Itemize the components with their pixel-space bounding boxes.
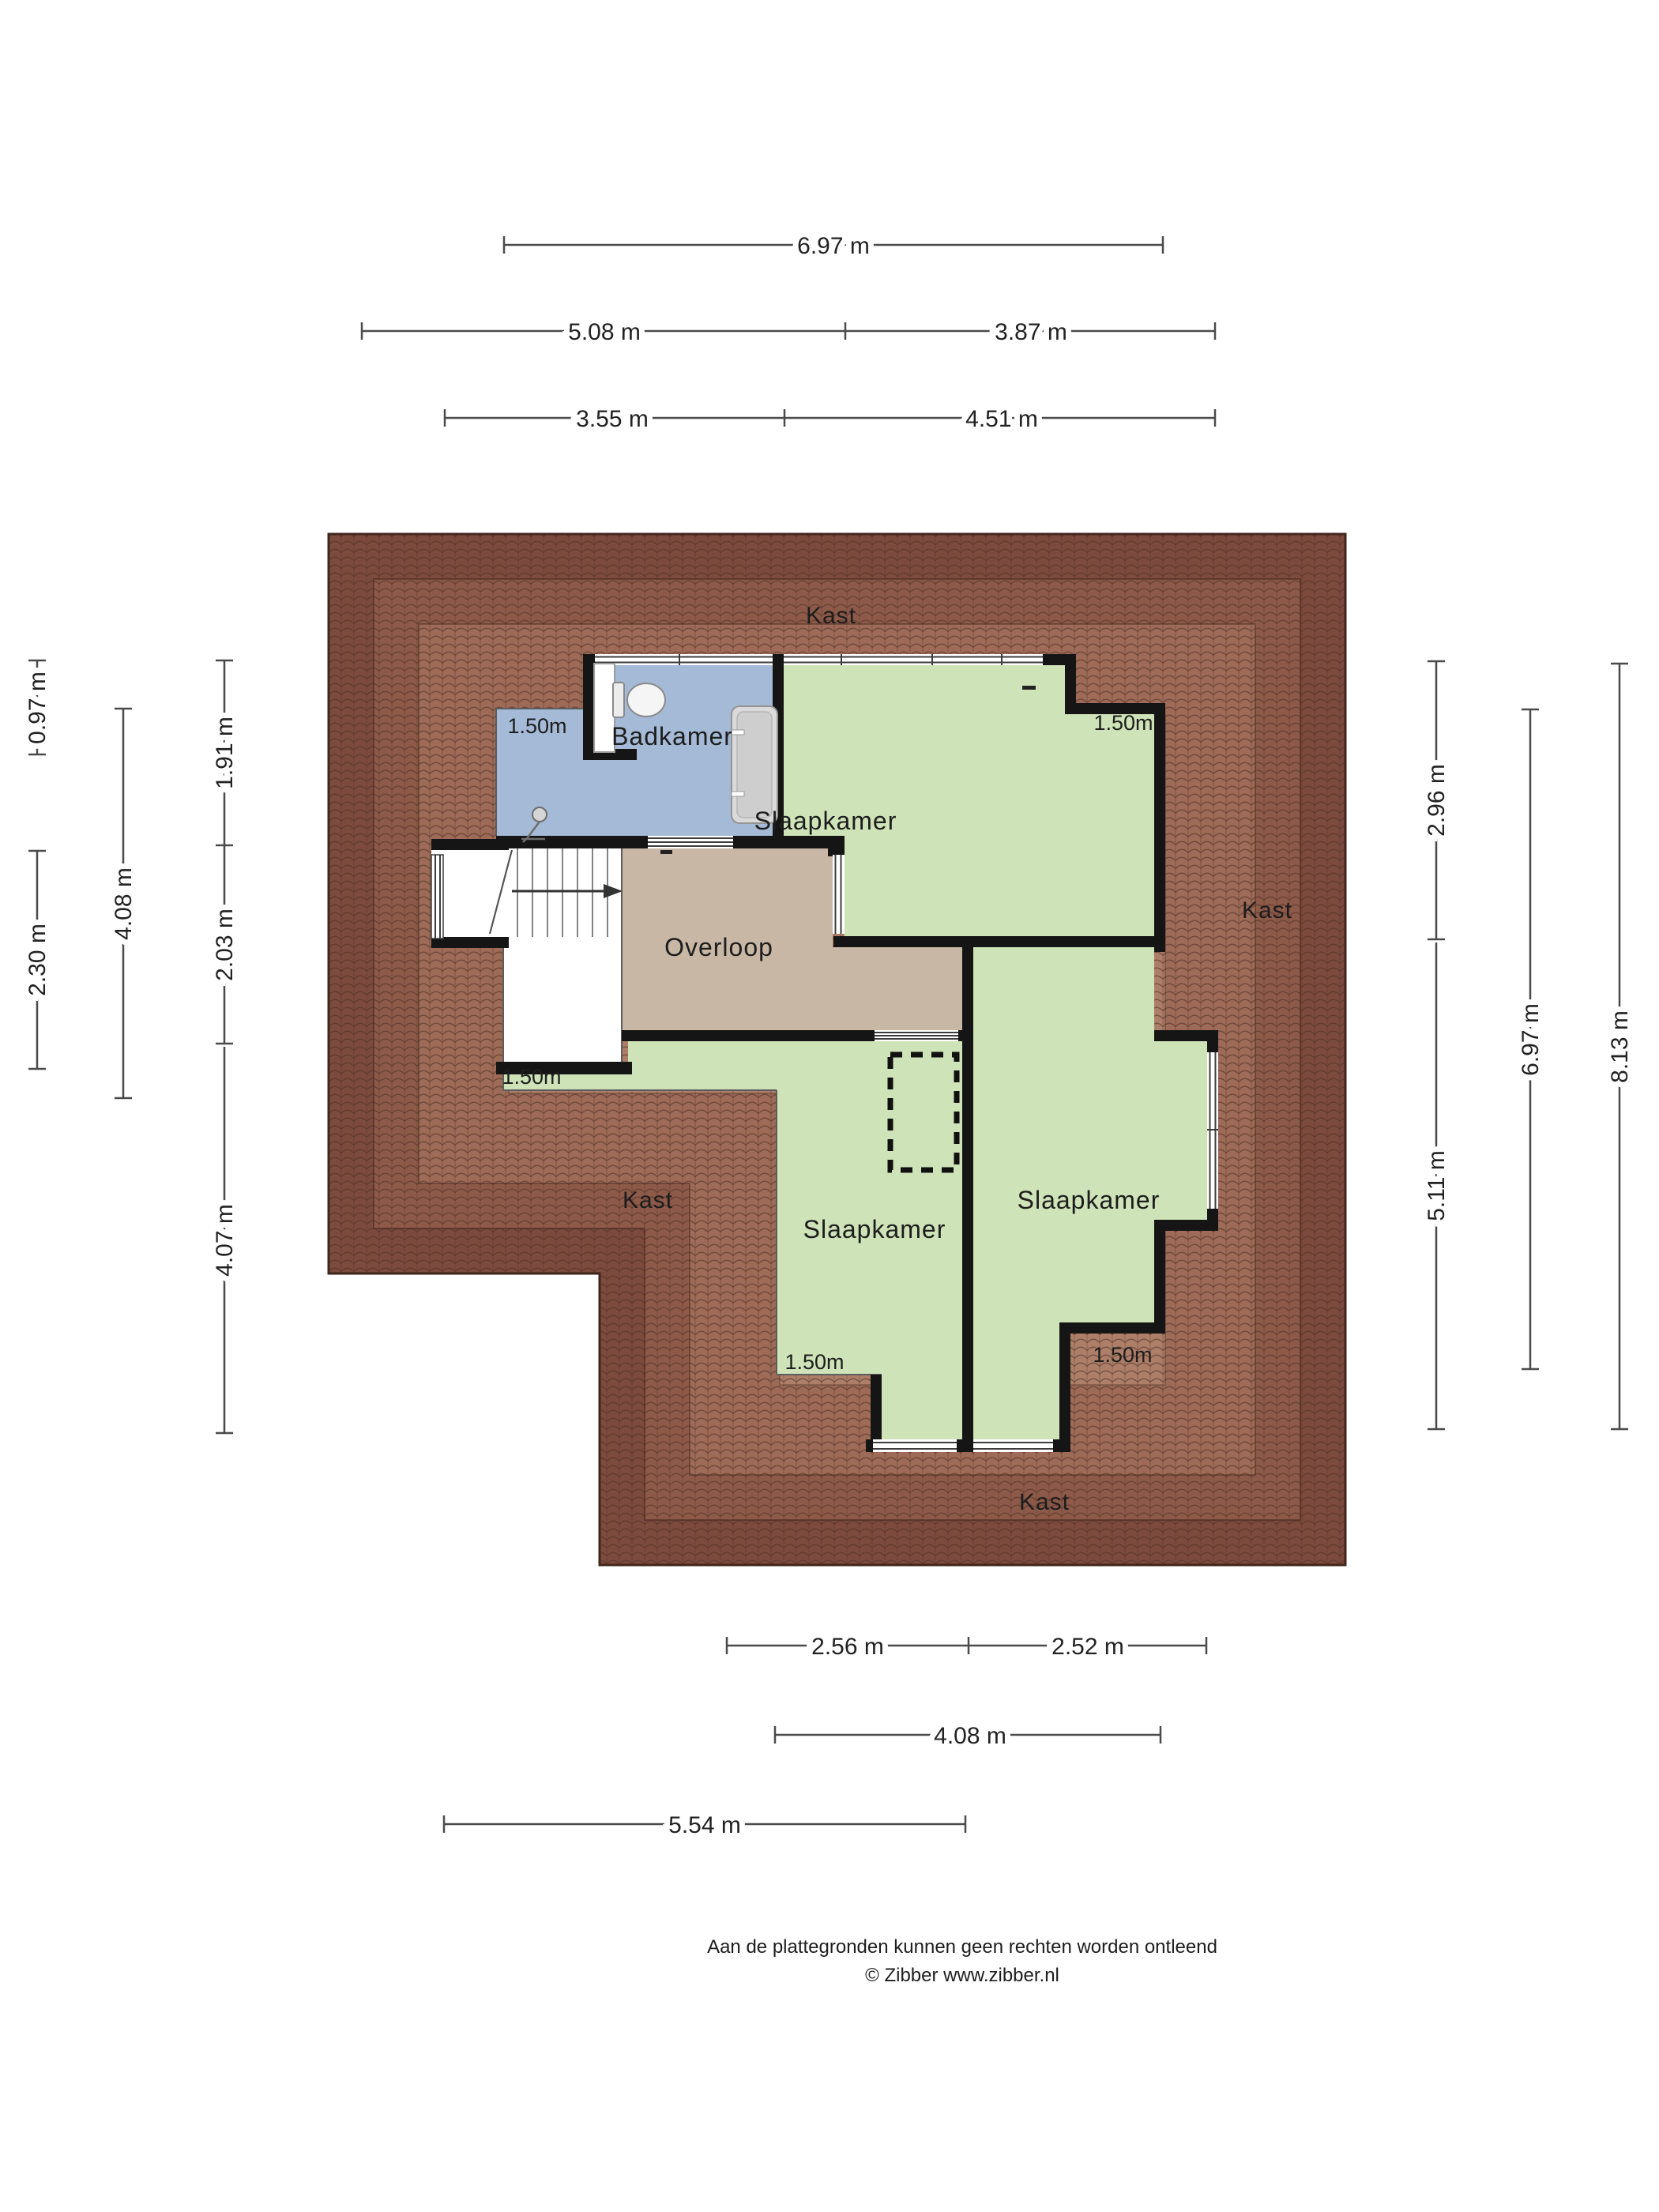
dim-label: 6.97 m — [797, 233, 870, 259]
dim-label: 2.56 m — [811, 1634, 884, 1660]
stair-void — [503, 937, 622, 1062]
dim-label: 0.97 m — [24, 671, 51, 744]
wall-divider — [962, 936, 973, 1452]
dim-left-191: 1.91 m — [212, 660, 238, 845]
window-stairwell — [431, 855, 443, 939]
wall-bay-north — [1154, 1030, 1218, 1041]
footer-credit: © Zibber www.zibber.nl — [865, 1965, 1059, 1986]
dim-label: 5.11 m — [1424, 1150, 1450, 1221]
dim-left-408: 4.08 m — [111, 709, 137, 1098]
dim-right-813: 8.13 m — [1607, 664, 1633, 1429]
toilet-icon — [613, 683, 665, 717]
dim-right-296: 2.96 m — [1424, 661, 1450, 939]
window-overloop-east — [833, 855, 845, 934]
dim-label: 2.52 m — [1051, 1634, 1124, 1660]
clearance-stairs: 1.50m — [502, 1065, 561, 1089]
dimensions-right: 2.96 m 5.11 m 6.97 m 8.13 m — [1424, 661, 1633, 1429]
dim-top-697: 6.97 m — [504, 233, 1163, 259]
dim-label: 5.08 m — [568, 319, 641, 345]
wall-bay-south — [1154, 1220, 1218, 1231]
wall-se-jog — [1059, 1322, 1165, 1334]
label-badkamer: Badkamer — [611, 722, 733, 750]
dim-label: 3.55 m — [576, 406, 649, 432]
dim-left-097: 0.97 m — [24, 660, 51, 754]
dim-left-203: 2.03 m — [212, 845, 238, 1044]
label-slaapkamer-3: Slaapkamer — [1018, 1186, 1161, 1214]
label-kast-left: Kast — [623, 1187, 673, 1213]
wall-bed1-south — [833, 936, 1165, 947]
dim-bottom-554: 5.54 m — [444, 1812, 965, 1838]
wall-bay-cap-1 — [1207, 1041, 1218, 1052]
dim-label: 3.87 m — [995, 319, 1067, 345]
window-bay-east — [1207, 1052, 1218, 1209]
dim-label: 4.08 m — [934, 1723, 1006, 1749]
dimensions-bottom: 2.56 m 2.52 m 4.08 m 5.54 m — [444, 1634, 1206, 1838]
footer: Aan de plattegronden kunnen geen rechten… — [707, 1936, 1217, 1986]
label-overloop: Overloop — [664, 933, 773, 961]
dimensions-left: 0.97 m 2.30 m 4.08 m 1.91 m 2.03 m — [24, 660, 238, 1433]
door-mark-bed1 — [1022, 686, 1036, 690]
label-kast-right: Kast — [1242, 897, 1292, 924]
window-bottom-2 — [973, 1439, 1053, 1452]
clearance-slaapkamer-2: 1.50m — [784, 1350, 844, 1374]
wall-badkamer-west — [583, 654, 594, 758]
floorplan-page: Badkamer Slaapkamer Overloop Slaapkamer … — [0, 0, 1659, 2212]
dim-label: 4.51 m — [965, 406, 1038, 432]
dim-bottom-256: 2.56 m — [727, 1634, 969, 1660]
clearance-slaapkamer-1: 1.50m — [1093, 711, 1153, 735]
door-overloop-south — [875, 1030, 958, 1041]
door-badkamer-south — [648, 836, 733, 848]
dim-label: 2.03 m — [212, 908, 238, 981]
label-slaapkamer-1: Slaapkamer — [754, 807, 897, 835]
dim-top-451: 4.51 m — [784, 406, 1215, 432]
dim-label: 4.08 m — [111, 867, 137, 940]
wall-alcove-north — [431, 839, 509, 850]
dim-top-508: 5.08 m — [362, 319, 845, 345]
footer-disclaimer: Aan de plattegronden kunnen geen rechten… — [707, 1936, 1217, 1958]
dim-bottom-408: 4.08 m — [775, 1723, 1161, 1749]
window-top-band — [595, 654, 1043, 665]
dim-label: 2.96 m — [1424, 764, 1450, 837]
clearance-slaapkamer-3: 1.50m — [1093, 1343, 1152, 1367]
dim-left-230: 2.30 m — [24, 851, 51, 1069]
dim-label: 5.54 m — [668, 1812, 741, 1838]
dim-right-511: 5.11 m — [1424, 942, 1450, 1429]
bathtub-icon — [732, 706, 777, 823]
door-mark-overloop — [660, 850, 672, 854]
dim-bottom-252: 2.52 m — [969, 1634, 1206, 1660]
floorplan-canvas: Badkamer Slaapkamer Overloop Slaapkamer … — [0, 0, 1659, 2212]
wall-bay-cap-2 — [1207, 1209, 1218, 1220]
wall-se-vert — [1059, 1322, 1070, 1452]
dim-label: 2.30 m — [24, 924, 51, 996]
dim-label: 4.07 m — [212, 1204, 238, 1277]
window-bottom-1 — [873, 1439, 957, 1452]
label-kast-bottom: Kast — [1019, 1489, 1070, 1515]
dimensions-top: 6.97 m 5.08 m 3.87 m 3.55 m 4.51 m — [362, 233, 1215, 432]
label-slaapkamer-2: Slaapkamer — [803, 1215, 946, 1243]
dim-top-355: 3.55 m — [445, 406, 784, 432]
dim-top-387: 3.87 m — [845, 319, 1215, 345]
label-kast-top: Kast — [806, 603, 856, 629]
dim-label: 1.91 m — [212, 717, 238, 789]
wall-east-upper — [1154, 703, 1165, 952]
dim-label: 8.13 m — [1607, 1010, 1633, 1083]
dim-label: 6.97 m — [1518, 1003, 1544, 1076]
dim-right-697: 6.97 m — [1518, 709, 1544, 1369]
wall-east-mid — [1154, 1231, 1165, 1334]
clearance-badkamer: 1.50m — [507, 714, 566, 738]
dim-left-407: 4.07 m — [212, 1047, 238, 1433]
